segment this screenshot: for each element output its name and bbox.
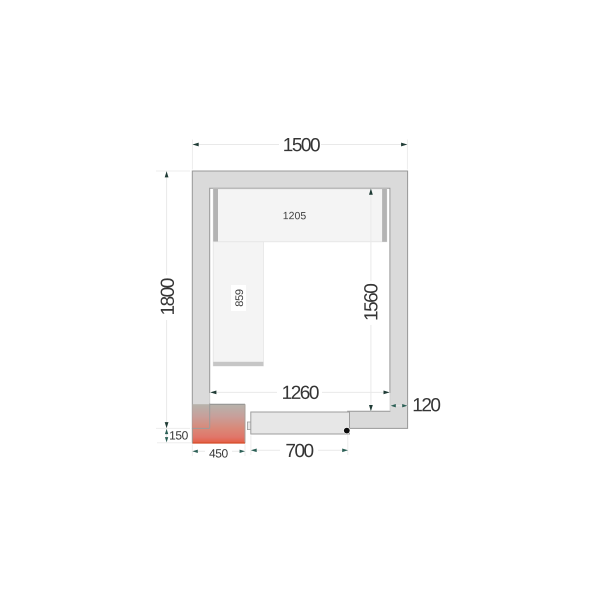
svg-text:1205: 1205: [283, 210, 307, 222]
svg-text:150: 150: [169, 428, 189, 442]
svg-text:1560: 1560: [361, 284, 382, 321]
svg-text:700: 700: [285, 441, 313, 462]
svg-text:1260: 1260: [282, 383, 319, 404]
svg-text:450: 450: [209, 446, 229, 460]
svg-text:120: 120: [412, 395, 440, 416]
svg-text:1800: 1800: [158, 278, 179, 315]
svg-text:1500: 1500: [283, 135, 320, 156]
svg-text:859: 859: [234, 289, 246, 307]
